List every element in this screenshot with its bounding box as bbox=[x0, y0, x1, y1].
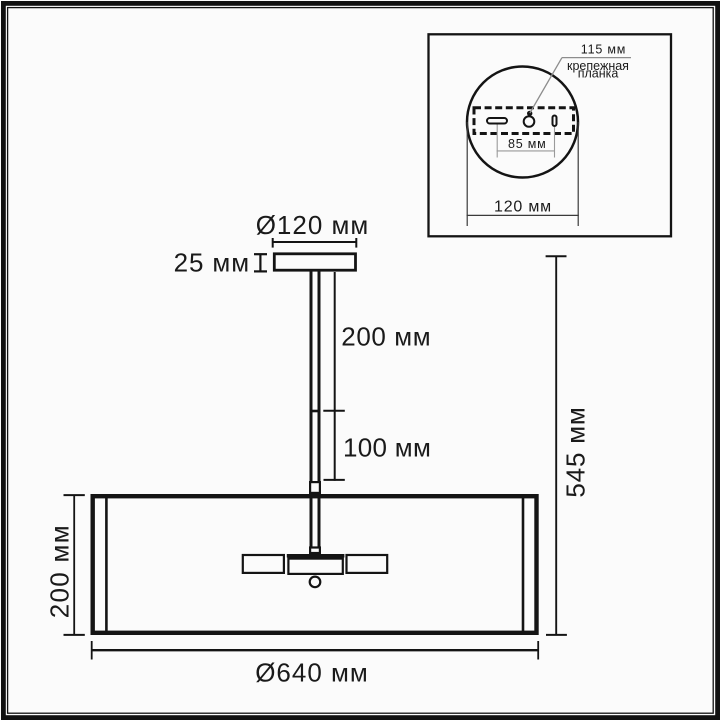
svg-text:25 мм: 25 мм bbox=[174, 248, 250, 278]
svg-text:545 мм: 545 мм bbox=[561, 406, 591, 497]
svg-text:120 мм: 120 мм bbox=[494, 198, 552, 215]
svg-text:85 мм: 85 мм bbox=[508, 137, 547, 151]
svg-text:планка: планка bbox=[578, 67, 619, 81]
svg-text:100 мм: 100 мм bbox=[343, 433, 431, 463]
svg-text:115 мм: 115 мм bbox=[581, 42, 626, 56]
svg-text:200 мм: 200 мм bbox=[341, 321, 431, 351]
svg-text:200 мм: 200 мм bbox=[44, 524, 74, 618]
svg-text:Ø120 мм: Ø120 мм bbox=[256, 210, 370, 240]
svg-text:Ø640 мм: Ø640 мм bbox=[255, 657, 369, 687]
